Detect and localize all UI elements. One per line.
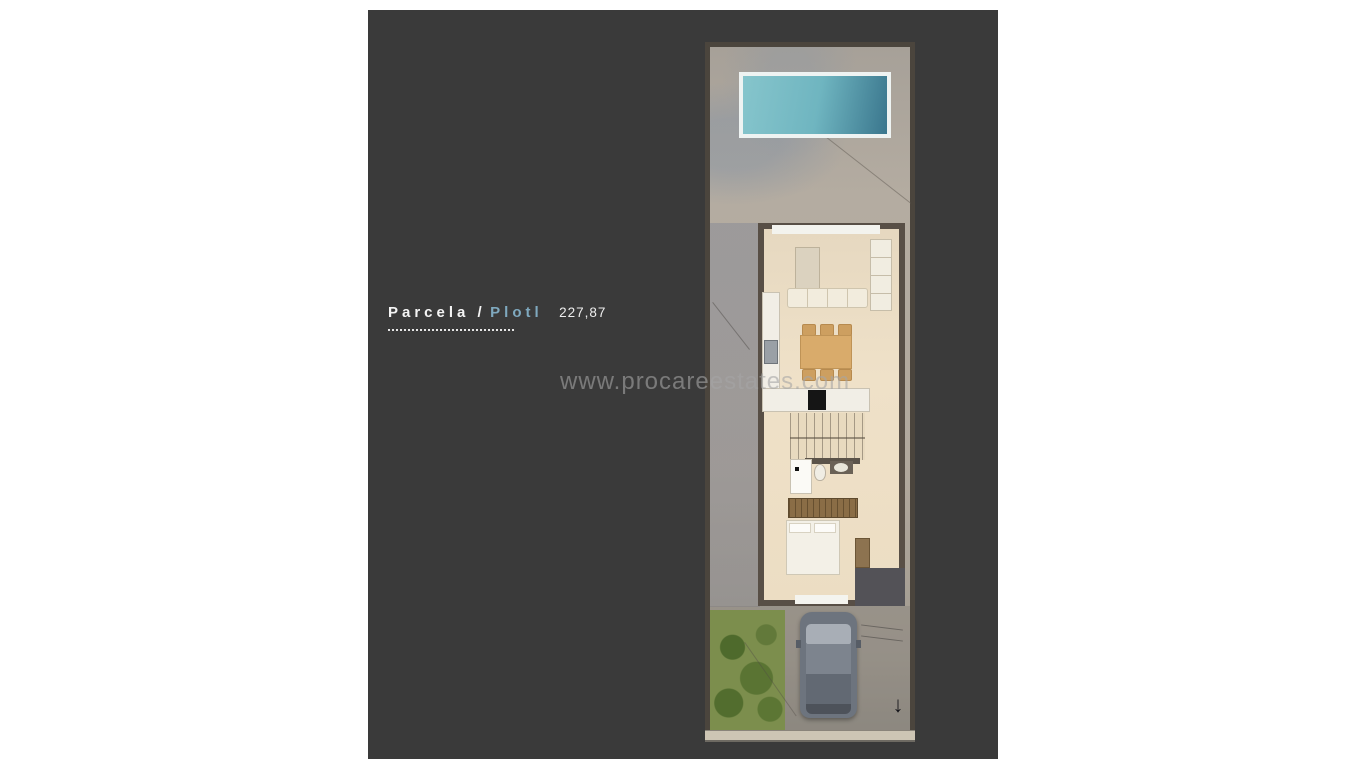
plot-area-value: 227,87 <box>559 305 606 320</box>
bedroom-desk <box>855 538 870 568</box>
dining-chair <box>838 369 852 381</box>
side-path <box>710 223 760 607</box>
sofa <box>787 288 868 308</box>
plot-area-label: Parcela / Plotl 227,87 <box>388 304 606 322</box>
staircase <box>790 413 865 460</box>
dining-chair <box>802 369 816 381</box>
car-roof <box>806 644 851 674</box>
pillow <box>814 523 836 533</box>
car-tail <box>806 704 851 714</box>
parked-car <box>800 612 857 718</box>
washbasin <box>834 463 848 472</box>
dining-chair <box>820 369 834 381</box>
double-bed <box>786 520 840 575</box>
front-boundary-wall <box>705 730 915 742</box>
dimension-arrow-icon: ↓ <box>887 690 909 720</box>
wardrobe <box>788 498 858 518</box>
dining-table <box>800 335 852 369</box>
shower <box>790 459 812 494</box>
dotted-underline <box>388 329 514 331</box>
shaded-terrace <box>855 568 905 606</box>
shelving-unit <box>870 239 892 311</box>
garden <box>710 610 785 734</box>
label-plot: Plotl <box>490 304 543 321</box>
car-rear-window <box>806 674 851 704</box>
site-plan: ↓ <box>705 42 915 742</box>
cooktop <box>808 390 826 410</box>
tv-unit <box>795 247 820 290</box>
car-mirror <box>856 640 861 648</box>
shower-drain <box>795 467 799 471</box>
house-footprint <box>758 223 905 606</box>
rear-window-band <box>772 225 880 234</box>
car-mirror <box>796 640 801 648</box>
car-windshield <box>806 624 851 644</box>
screenshot-canvas: Parcela / Plotl 227,87 www.procareestate… <box>0 0 1366 768</box>
swimming-pool <box>739 72 891 138</box>
entrance-door <box>795 595 848 604</box>
bathroom-vanity <box>830 461 853 474</box>
image-panel: Parcela / Plotl 227,87 www.procareestate… <box>368 10 998 759</box>
toilet <box>814 464 826 481</box>
kitchen-sink-appliance <box>764 340 778 364</box>
pillow <box>789 523 811 533</box>
label-parcela: Parcela / <box>388 304 486 321</box>
